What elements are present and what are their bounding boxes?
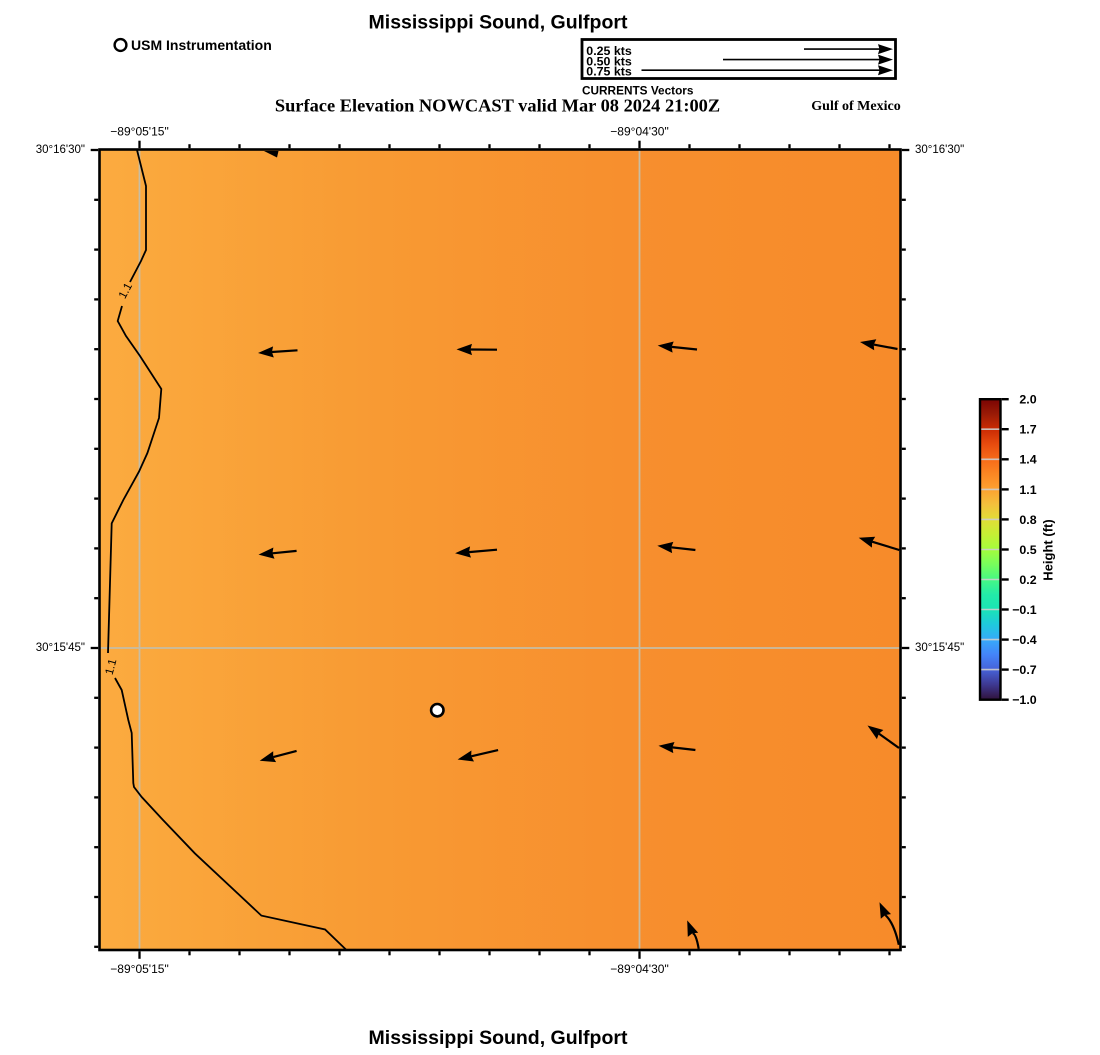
svg-text:USM Instrumentation: USM Instrumentation [131,37,272,53]
svg-text:−89°05'15": −89°05'15" [110,962,168,976]
svg-text:Surface Elevation NOWCAST vali: Surface Elevation NOWCAST valid Mar 08 2… [275,96,720,116]
svg-text:Mississippi Sound, Gulfport: Mississippi Sound, Gulfport [369,1027,628,1049]
svg-text:CURRENTS Vectors: CURRENTS Vectors [582,84,694,98]
svg-text:−89°05'15": −89°05'15" [110,125,168,139]
svg-text:2.0: 2.0 [1019,393,1036,407]
svg-text:30°16'30": 30°16'30" [36,144,85,156]
svg-text:−0.7: −0.7 [1012,663,1037,677]
svg-text:Gulf of Mexico: Gulf of Mexico [811,99,900,114]
svg-text:−1.0: −1.0 [1012,693,1037,707]
svg-text:1.4: 1.4 [1019,453,1036,467]
svg-text:1.1: 1.1 [1019,483,1036,497]
svg-text:0.8: 0.8 [1019,513,1036,527]
svg-text:−89°04'30": −89°04'30" [610,125,668,139]
svg-text:Mississippi Sound, Gulfport: Mississippi Sound, Gulfport [369,12,628,34]
svg-text:30°15'45": 30°15'45" [915,642,964,654]
svg-text:0.2: 0.2 [1019,573,1036,587]
svg-text:0.5: 0.5 [1019,543,1036,557]
svg-text:Height (ft): Height (ft) [1041,519,1056,580]
svg-text:30°15'45": 30°15'45" [36,642,85,654]
svg-text:−0.1: −0.1 [1012,603,1037,617]
svg-text:1.7: 1.7 [1019,423,1036,437]
svg-text:0.75 kts: 0.75 kts [586,65,632,79]
svg-text:−0.4: −0.4 [1012,633,1037,647]
svg-text:−89°04'30": −89°04'30" [610,962,668,976]
svg-text:30°16'30": 30°16'30" [915,144,964,156]
